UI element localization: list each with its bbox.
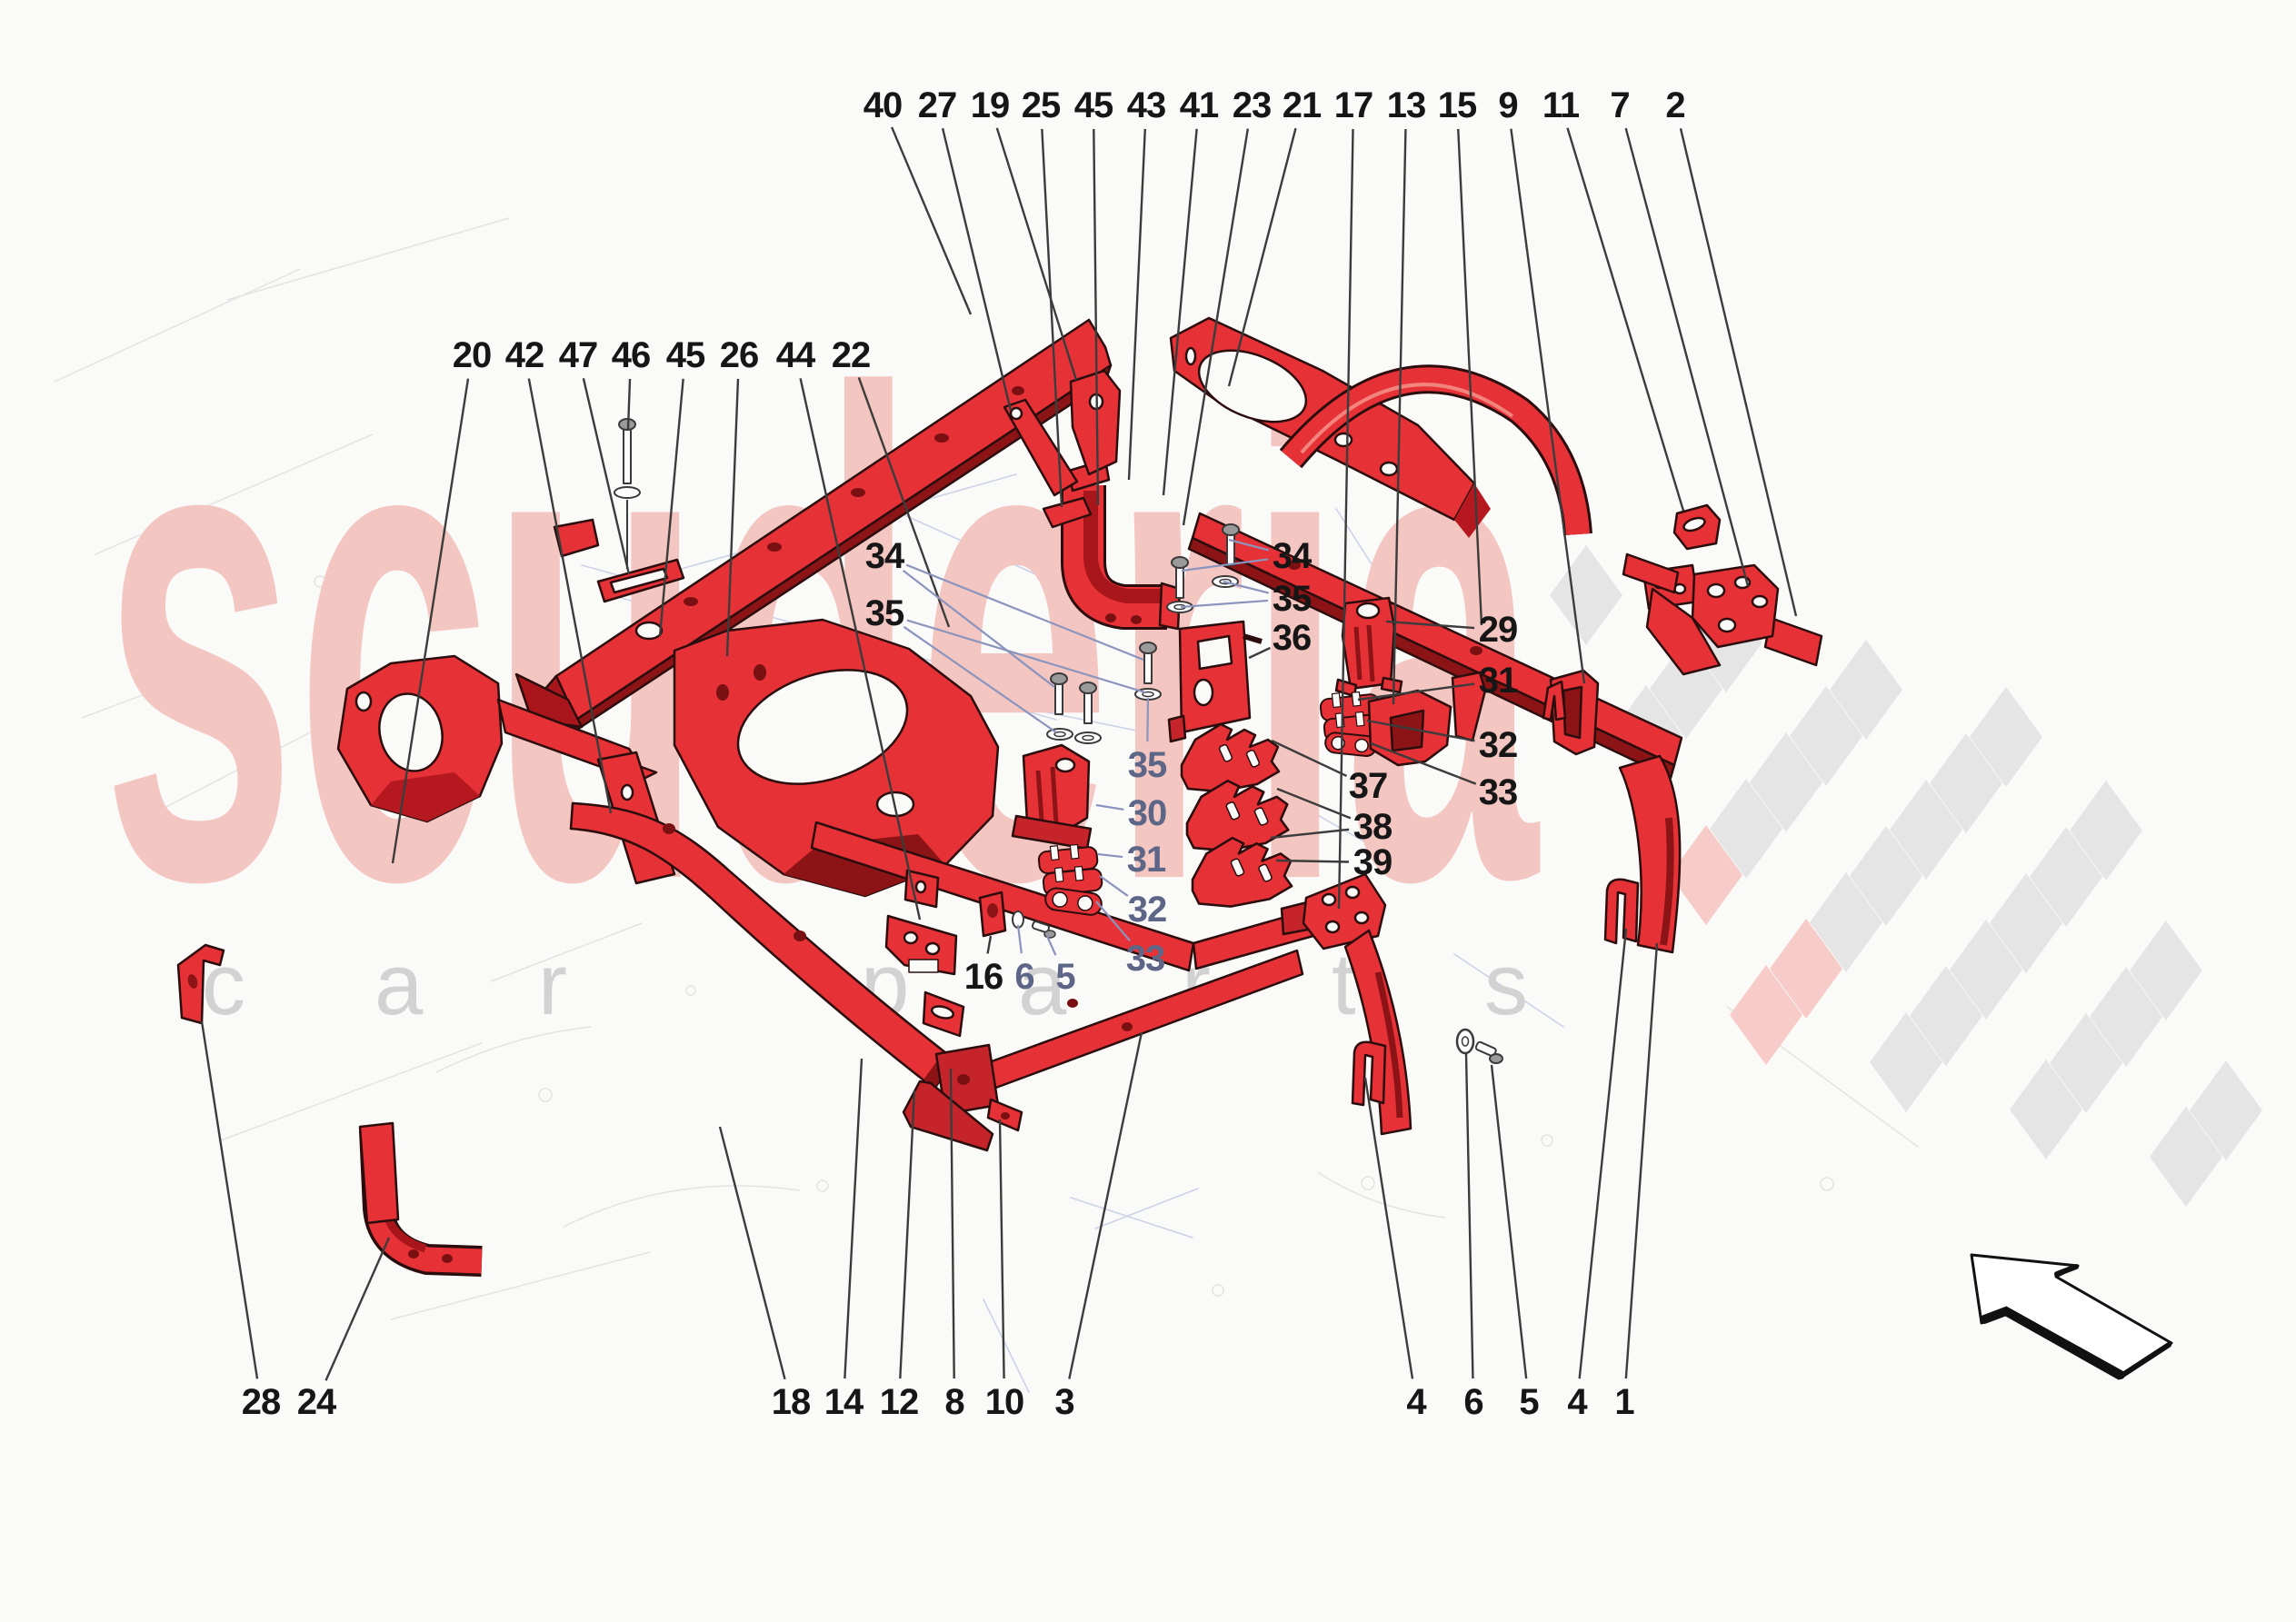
leader-line-6c [1018, 925, 1022, 953]
leader-line-15 [1458, 129, 1482, 625]
leader-line-6b [1466, 1054, 1472, 1378]
leader-line-20 [393, 379, 468, 863]
leader-line-30c [1096, 805, 1123, 810]
leader-line-18 [720, 1127, 785, 1379]
leader-line-22 [859, 377, 949, 627]
leader-line-37 [1272, 741, 1346, 776]
leader-line-43 [1129, 129, 1145, 480]
leader-line-1 [1626, 943, 1657, 1378]
leader-line-10 [1000, 1119, 1004, 1378]
leader-line-31R [1358, 684, 1474, 700]
leader-line-12 [900, 1090, 914, 1378]
leader-line-28 [202, 1021, 257, 1378]
leader-line-35L [907, 621, 1145, 692]
leader-line-46 [628, 379, 630, 429]
leader-line-32c [1100, 876, 1128, 896]
leader-line-33c [1096, 901, 1130, 940]
leader-line-13 [1393, 129, 1405, 704]
leader-line-23 [1183, 129, 1248, 525]
leader-line-11 [1568, 128, 1683, 511]
leader-line-31c [1098, 854, 1123, 857]
leader-line-35R [1181, 601, 1268, 607]
leader-line-14 [844, 1059, 862, 1378]
leader-line-4a [1365, 1078, 1413, 1378]
leader-line-34L [906, 565, 1143, 660]
parts-catalog-page: scuderia carparts [0, 0, 2296, 1622]
leader-line-33R [1371, 743, 1476, 784]
leader-line-47 [584, 378, 629, 574]
leader-line-35c [1147, 698, 1148, 741]
leader-line-41 [1163, 129, 1197, 495]
leader-lines [0, 0, 2296, 1622]
leader-line-3 [1069, 1032, 1142, 1379]
leader-line-24 [326, 1238, 389, 1380]
leader-line-17 [1339, 129, 1353, 909]
leader-line-40 [892, 127, 971, 314]
leader-line-36 [1249, 648, 1270, 658]
leader-line-34R [1229, 540, 1269, 550]
leader-line-29 [1386, 622, 1474, 628]
leader-line-5c [1047, 936, 1055, 955]
leader-line-38 [1277, 789, 1351, 818]
leader-line-9 [1511, 129, 1584, 683]
leader-line-4b [1580, 929, 1626, 1378]
leader-line-32R [1367, 721, 1474, 741]
leader-line-2 [1681, 128, 1796, 616]
leader-line-8 [951, 1069, 954, 1378]
leader-line-44 [801, 378, 920, 920]
leader-line-39 [1276, 861, 1349, 862]
leader-line-25 [1042, 129, 1062, 507]
leader-line-45t [1093, 129, 1098, 505]
leader-line-26 [727, 379, 738, 656]
leader-line-16 [988, 936, 991, 953]
leader-line-5b [1492, 1065, 1526, 1378]
leader-line-19 [997, 128, 1076, 380]
leader-line-21 [1229, 128, 1295, 386]
leader-line-7 [1626, 128, 1748, 586]
leader-line-45b [660, 379, 684, 636]
leader-line-38 [1271, 830, 1349, 838]
leader-line-34R [1182, 559, 1268, 571]
leader-line-34L [903, 571, 1054, 687]
leader-line-35R [1223, 582, 1269, 593]
